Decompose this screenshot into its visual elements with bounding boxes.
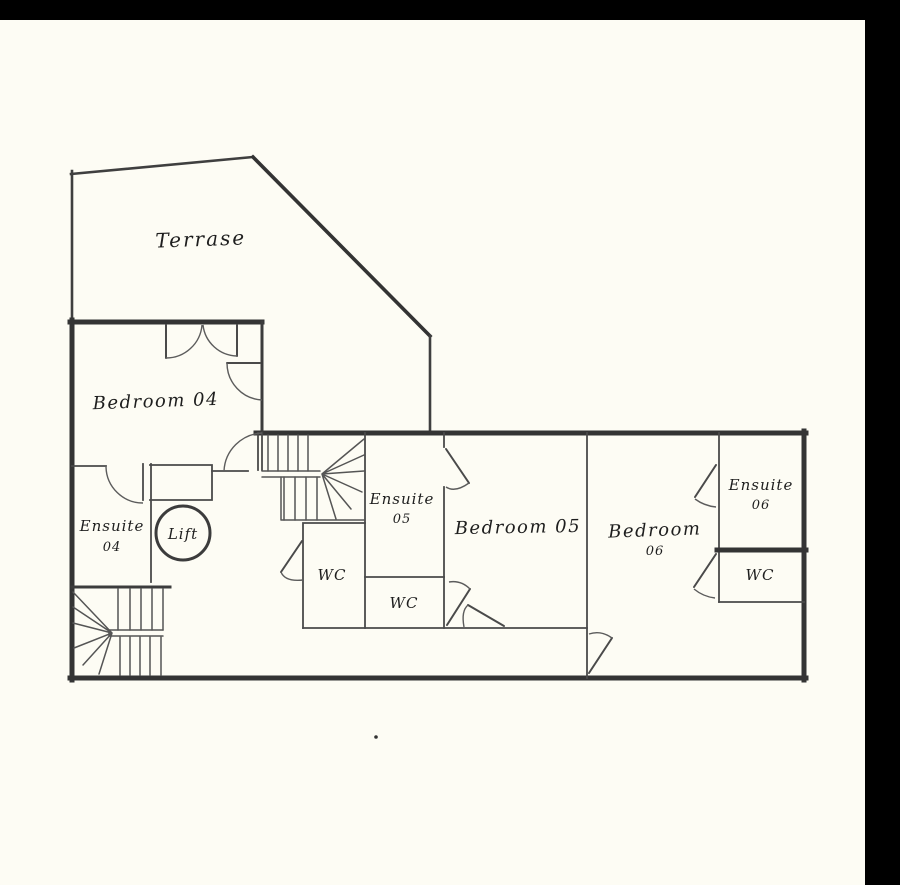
paper-sheet <box>0 20 865 885</box>
room-label-bedroom06-line2: 06 <box>646 544 665 559</box>
room-label-ensuite04-line2: 04 <box>103 540 122 555</box>
room-label-ensuite04-line1: Ensuite <box>79 517 145 535</box>
lift-label: Lift <box>167 525 198 543</box>
room-label-wc-middle: WC <box>390 594 419 612</box>
pencil-dot <box>374 735 378 739</box>
floorplan-drawing: Terrase Bedroom 04 Ensuite 04 Lift Ensui… <box>0 0 900 885</box>
room-label-bedroom06-line1: Bedroom <box>607 518 702 542</box>
room-label-bedroom04: Bedroom 04 <box>91 389 219 414</box>
room-label-ensuite06-line1: Ensuite <box>728 476 794 494</box>
floorplan-screenshot: Terrase Bedroom 04 Ensuite 04 Lift Ensui… <box>0 0 900 885</box>
room-label-wc-left: WC <box>318 566 347 584</box>
room-label-bedroom05: Bedroom 05 <box>454 516 582 539</box>
room-label-ensuite06-line2: 06 <box>752 498 771 513</box>
room-label-wc-right: WC <box>746 566 775 584</box>
room-label-terrace: Terrase <box>155 225 247 252</box>
room-label-ensuite05-line1: Ensuite <box>369 490 435 508</box>
room-label-ensuite05-line2: 05 <box>393 512 412 527</box>
